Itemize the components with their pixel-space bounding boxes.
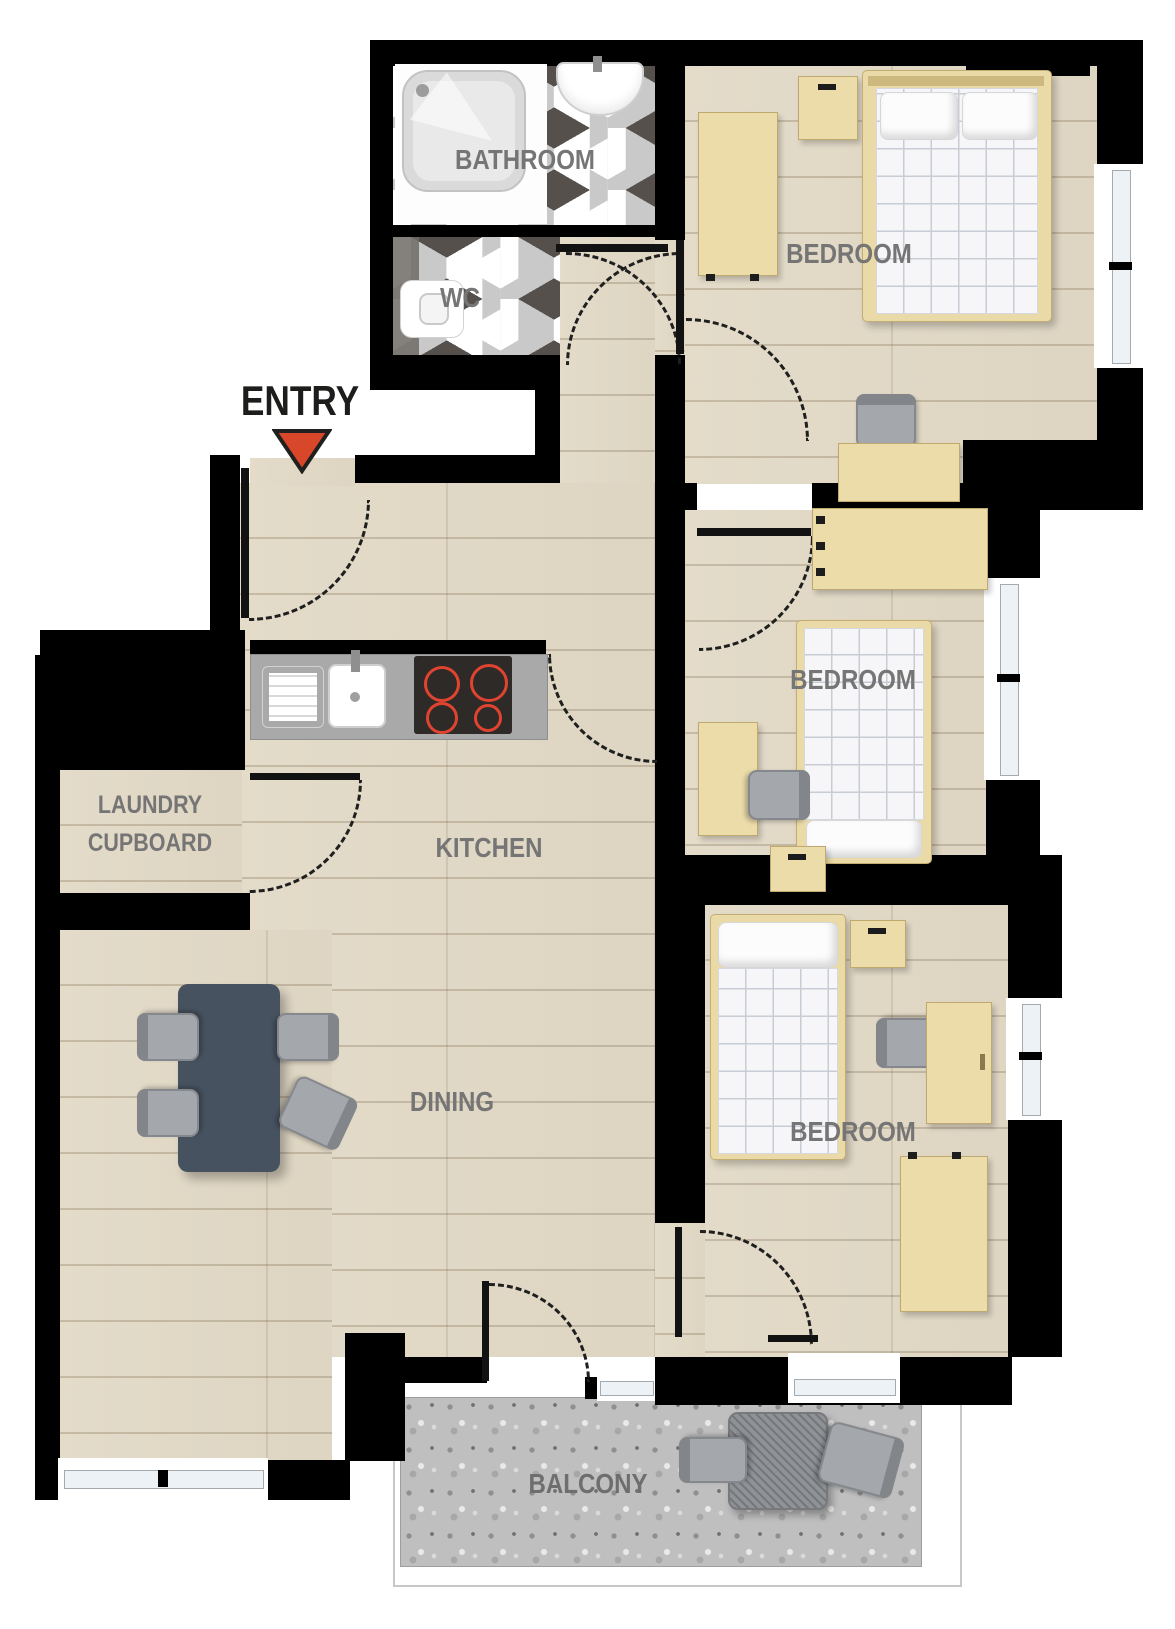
wall (355, 455, 560, 483)
sink-faucet (351, 650, 360, 672)
wardrobe-handles (816, 516, 825, 576)
entry-arrow-icon (272, 428, 332, 474)
sink-drainer (262, 666, 324, 728)
bedside-table-handle (868, 928, 886, 934)
wardrobe (812, 508, 988, 590)
bedroom-bottom-south-window-glass (794, 1379, 896, 1396)
pillow (880, 92, 958, 140)
balcony-label: BALCONY (528, 1468, 648, 1500)
bedroom-top-label: BEDROOM (767, 238, 930, 270)
pillow (962, 92, 1038, 140)
bedroom-bottom-window-glass (1022, 1004, 1041, 1116)
wall (35, 1460, 60, 1500)
wall (655, 510, 685, 855)
wall (250, 640, 546, 654)
door-leaf (768, 1335, 818, 1342)
bedside-table (770, 846, 826, 892)
wall (535, 390, 560, 458)
wall (40, 630, 245, 770)
entry-door-leaf (241, 468, 249, 618)
desk (838, 443, 960, 502)
window-mullion (158, 1470, 168, 1487)
dining-chair (277, 1013, 339, 1061)
laundry-cupboard-label-line2: CUPBOARD (73, 828, 228, 858)
laundry-cupboard-label-line1: LAUNDRY (73, 790, 228, 820)
wall (986, 510, 1040, 580)
window-mullion (1109, 262, 1132, 270)
window-mullion (1019, 1052, 1042, 1060)
window-mullion (997, 674, 1020, 682)
wall (345, 1333, 405, 1461)
desk-handle (980, 1054, 985, 1070)
bathroom-door-leaf (556, 244, 668, 252)
sink-drain (350, 692, 360, 702)
laundry-door-leaf (250, 773, 360, 780)
pillow (718, 922, 838, 968)
dining-balcony-window-glass (600, 1381, 654, 1396)
dining-label: DINING (396, 1086, 508, 1118)
bedside-table-handle (788, 854, 806, 860)
bedroom-bottom-door-leaf (675, 1227, 682, 1337)
bedroom-top-door-leaf (676, 240, 684, 354)
entry-label: ENTRY (237, 378, 363, 424)
outdoor-chair (679, 1437, 747, 1483)
wall (370, 355, 560, 390)
wall (1097, 66, 1143, 168)
balcony-door-leaf (482, 1281, 489, 1381)
basin-tap (593, 56, 602, 72)
hob-burner (424, 666, 460, 702)
wall (400, 1357, 487, 1383)
desk-chair (748, 770, 810, 820)
floor-plan: ENTRY BATHROOM WC BEDROOM BEDROOM BEDROO… (0, 0, 1175, 1629)
wc-label: WC (430, 282, 490, 314)
wardrobe (900, 1156, 988, 1312)
bedroom-middle-door-leaf (697, 528, 811, 536)
desk-chair (856, 394, 916, 448)
wall (986, 778, 1040, 855)
bathroom-label: BATHROOM (439, 144, 611, 176)
bedroom-bottom-label: BEDROOM (771, 1116, 934, 1148)
wall (655, 905, 705, 1223)
wall (35, 655, 60, 1460)
dining-chair (137, 1089, 199, 1137)
wall (370, 225, 655, 237)
wall (370, 40, 393, 360)
hob-burner (426, 702, 458, 734)
bedside-table-handle (818, 84, 836, 90)
bed-headboard (868, 76, 1044, 86)
wall (1008, 905, 1062, 1000)
kitchen-label: KITCHEN (433, 832, 545, 864)
hob-burner (474, 704, 502, 732)
bedroom-middle-label: BEDROOM (771, 664, 934, 696)
dining-table (178, 984, 280, 1172)
shower-head (416, 84, 429, 97)
dining-chair (137, 1013, 199, 1061)
hob-burner (470, 664, 508, 702)
wardrobe-feet (706, 274, 770, 281)
single-bed-mattress (804, 628, 924, 820)
wall (963, 440, 1143, 510)
wall (655, 483, 697, 510)
wardrobe (698, 112, 778, 276)
wall (655, 40, 685, 240)
wall (655, 355, 685, 483)
wall (265, 1460, 350, 1500)
wall (1008, 1115, 1062, 1357)
wardrobe-feet (908, 1152, 978, 1159)
wall (40, 893, 250, 930)
